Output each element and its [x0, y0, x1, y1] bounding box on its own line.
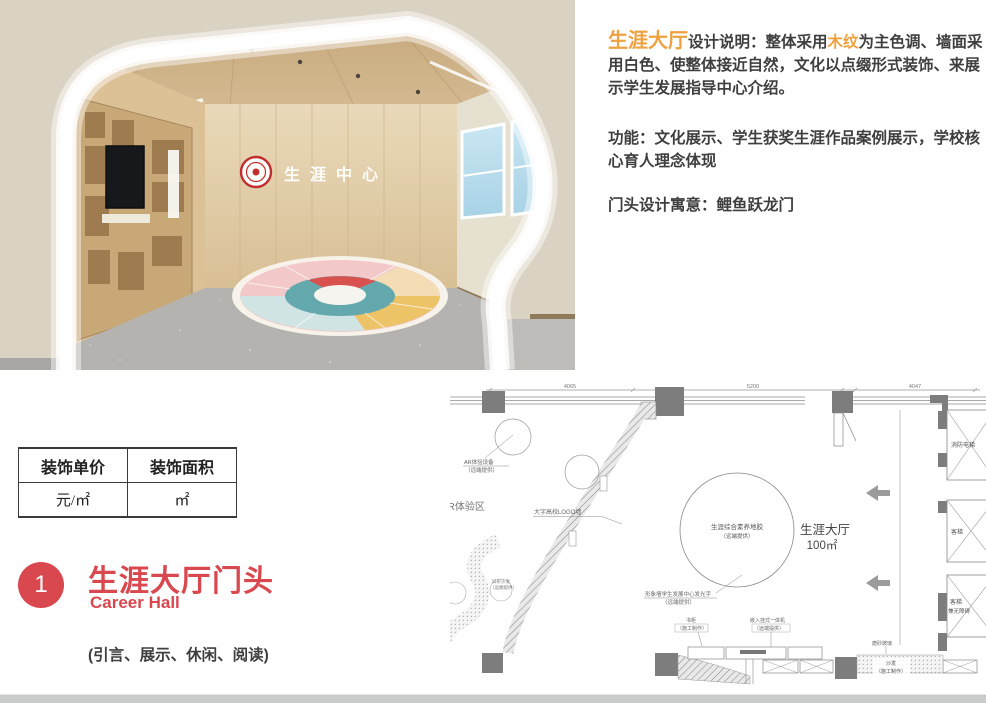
header-unit-price: 装饰单价 [19, 448, 128, 483]
section-note: (引言、展示、休闲、阅读) [88, 643, 269, 665]
section-subtitle: Career Hall [90, 593, 180, 613]
slide-page: 生涯中心 [0, 0, 986, 703]
svg-text:生涯综合素养地胶: 生涯综合素养地胶 [711, 522, 764, 531]
svg-text:（远端提供）: （远端提供） [754, 625, 784, 632]
fire-elevator-label: 消防电梯 [951, 441, 975, 449]
wood-grain-highlight: 木纹 [828, 34, 859, 51]
frosted-glass-label: 磨砂玻璃 [872, 640, 892, 647]
svg-text:（施工制作）: （施工制作） [677, 625, 707, 632]
sofa-label: 沙发 （施工制作） [873, 658, 910, 675]
svg-text:（远端提供）: （远端提供） [465, 466, 498, 474]
svg-text:异形沙发: 异形沙发 [492, 578, 510, 585]
elevators: 消防电梯 客梯 客梯 兼无障碍 [947, 410, 986, 637]
value-area: ㎡ [128, 483, 237, 518]
svg-text:（远端提供）: （远端提供） [490, 584, 517, 591]
design-description: 生涯大厅设计说明：整体采用木纹为主色调、墙面采用白色、使整体接近自然，文化以点缀… [608, 30, 984, 217]
room-area-label: 100㎡ [807, 539, 838, 552]
decoration-price-table: 装饰单价 装饰面积 元/㎡ ㎡ [18, 447, 237, 518]
svg-text:5200: 5200 [747, 384, 759, 390]
table-header-row: 装饰单价 装饰面积 [19, 448, 237, 483]
svg-text:兼无障碍: 兼无障碍 [948, 607, 971, 615]
svg-text:沙发: 沙发 [886, 660, 896, 667]
header-area: 装饰面积 [128, 448, 237, 483]
hall-logo-text: 生涯中心 [284, 165, 388, 184]
passenger-elevator-label: 客梯 [951, 528, 963, 536]
table-value-row: 元/㎡ ㎡ [19, 483, 237, 518]
career-hall-rendering: 生涯中心 [0, 0, 575, 370]
room-name-label: 生涯大厅 [800, 523, 850, 537]
svg-text:大字高校LOGO墙: 大字高校LOGO墙 [534, 508, 581, 516]
svg-text:嵌入挂式一体机: 嵌入挂式一体机 [750, 617, 785, 624]
shelf-ledge [102, 214, 150, 223]
lit-doorway [168, 150, 179, 218]
gate-meaning-paragraph: 门头设计寓意：鲤鱼跃龙门 [608, 194, 984, 217]
svg-text:（施工制作）: （施工制作） [876, 668, 906, 675]
floor-decal-career-wheel [232, 256, 448, 336]
school-emblem [241, 157, 271, 187]
svg-text:形象墙学生发展中心发光字: 形象墙学生发展中心发光字 [645, 590, 712, 598]
section-number-badge: 1 [18, 562, 64, 608]
page-bottom-edge [0, 694, 986, 703]
svg-text:4047: 4047 [909, 384, 921, 390]
hall-name-highlight: 生涯大厅 [608, 30, 688, 52]
design-description-paragraph-1: 生涯大厅设计说明：整体采用木纹为主色调、墙面采用白色、使整体接近自然，文化以点缀… [608, 30, 984, 100]
allinone-machine [740, 650, 766, 654]
svg-text:4065: 4065 [564, 384, 576, 390]
svg-text:AR体验设备: AR体验设备 [464, 458, 494, 466]
accessible-elevator-label: 客梯 [950, 598, 962, 606]
svg-text:（远端提供）: （远端提供） [662, 598, 695, 606]
function-paragraph: 功能：文化展示、学生获奖生涯作品案例展示，学校核心育人理念体现 [608, 127, 984, 173]
vr-zone-label: VR体验区 [450, 500, 485, 513]
floor-plan: 4065 5200 4047 [450, 383, 986, 703]
svg-text:书柜: 书柜 [686, 617, 696, 624]
tv-screen [106, 146, 144, 208]
value-unit-price: 元/㎡ [19, 483, 128, 518]
svg-text:（远端提供）: （远端提供） [720, 532, 753, 540]
